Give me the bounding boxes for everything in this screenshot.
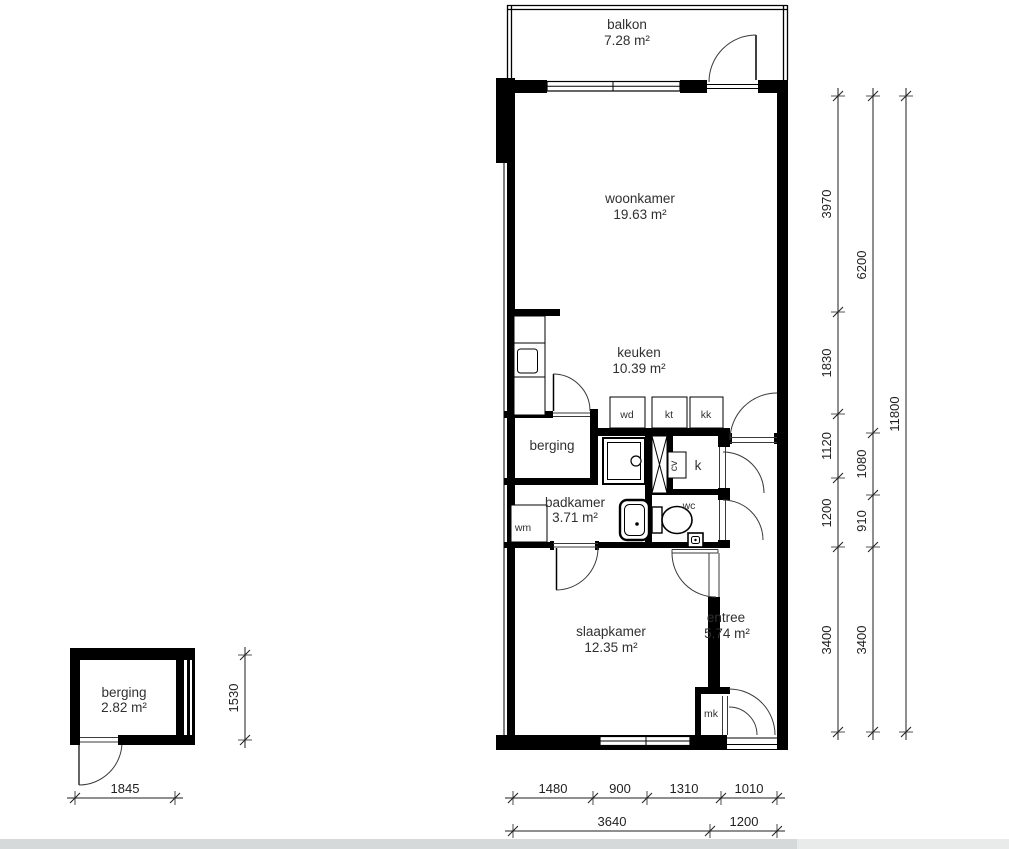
keuken-area: 10.39 m² [612,361,666,376]
wall-right [777,80,788,750]
balcony-door-threshold [707,85,758,89]
slaapkamer-label: slaapkamer [576,624,646,639]
sink [518,349,538,373]
wm-label: wm [514,522,532,534]
floorplan-drawing: wd kt kk wm cv balkon 7.28 m² woonkamer … [0,0,1009,849]
berging-buiten-area: 2.82 m² [101,700,147,715]
slaapkamer-area: 12.35 m² [584,640,638,655]
ext-berging-door-opening [80,735,122,745]
outbuilding-door-post-l [75,735,80,745]
wall-badkamer-south-1 [504,542,553,548]
dim-910: 910 [854,510,869,532]
outbuilding-wall-right [176,648,184,745]
wd-label: wd [619,409,634,421]
dim-900: 900 [609,781,631,796]
keuken-door-leaf [730,438,777,443]
shaft [652,436,667,493]
dim-1310: 1310 [670,781,699,796]
wall-left [507,163,515,750]
dim-1080: 1080 [854,450,869,479]
dim-6200: 6200 [854,251,869,280]
wall-top-2 [680,80,707,93]
slaapkamer-door-leaf [672,550,718,554]
wall-stub-kitchen [507,309,560,316]
wall-berging-bottom [504,478,598,485]
dim-1830: 1830 [819,349,834,378]
mk-door-arc [729,707,757,735]
berging-buiten-label: berging [101,685,146,700]
wc-door-jambs [720,500,726,540]
badkamer-label: badkamer [545,495,606,510]
mk-label: mk [704,708,719,720]
dim-3970: 3970 [819,190,834,219]
scrollbar [0,839,1009,849]
dim-1480: 1480 [539,781,568,796]
berging-door-arc [553,374,590,411]
wall-kitchen-south [598,428,730,436]
entree-label: entree [707,610,745,625]
floorplan-viewer: wd kt kk wm cv balkon 7.28 m² woonkamer … [0,0,1009,849]
wall-badkamer-south-2 [598,542,726,548]
room-labels: balkon 7.28 m² woonkamer 19.63 m² keuken… [101,17,750,720]
outbuilding-wall-right-2 [187,648,190,745]
woonkamer-label: woonkamer [604,191,675,206]
dim-1010: 1010 [735,781,764,796]
badkamer-door-arc [556,548,598,590]
balkon-area: 7.28 m² [604,33,650,48]
kast-door-arc [723,452,764,493]
ext-berging-door-arc [79,742,122,785]
wc-door-arc [723,500,763,540]
toilet-tank [652,507,662,533]
wc-drain-dot [694,539,696,541]
kk-label: kk [701,409,712,421]
badkamer-door-threshold [553,544,598,548]
dim-3640: 3640 [598,814,627,829]
dim-1120: 1120 [819,432,834,460]
dim-1200-bottom: 1200 [730,814,759,829]
slaapkamer-door-jambs [709,553,719,597]
wall-mk-left [695,687,701,735]
keuken-label: keuken [617,345,661,360]
wall-hall-block-mid [718,488,730,500]
outbuilding-wall-left [70,648,80,745]
wall-top-1 [496,80,547,93]
dim-3400-mid: 3400 [854,626,869,655]
mk-door-jambs [723,696,728,735]
outbuilding-wall-top [70,648,193,660]
keuken-door-arc [730,393,777,440]
berging-door-threshold [553,413,590,417]
washbasin-drain [635,522,639,526]
outbuilding-door-post-r [118,735,123,745]
balcony-door-arc [709,35,756,82]
dim-1845: 1845 [111,781,140,796]
dim-1530: 1530 [226,684,241,713]
washbasin-inner [625,505,645,536]
wall-berging-right [590,411,598,485]
outbuilding-wall-bottom [122,735,195,745]
door-post-badkamer-l [550,541,554,550]
entree-area: 5.74 m² [704,626,750,641]
front-door-arc [729,689,775,735]
berging-binnen-label: berging [529,438,574,453]
kast-label: k [695,458,702,473]
dim-1200-right: 1200 [819,499,834,528]
cv-label: cv [668,460,680,471]
shower-drain [631,456,641,466]
outbuilding-wall-right-3 [192,648,195,745]
front-door-opening [727,735,777,749]
kast-door-jambs [720,447,726,488]
dim-3400-inner: 3400 [819,626,834,655]
kitchen-counter [514,316,545,415]
wc-label: wc [682,500,696,512]
dim-11800: 11800 [887,396,902,431]
kt-label: kt [665,409,673,421]
badkamer-area: 3.71 m² [552,510,598,525]
scrollbar-thumb[interactable] [0,839,797,849]
balkon-label: balkon [607,17,647,32]
woonkamer-area: 19.63 m² [613,207,667,222]
